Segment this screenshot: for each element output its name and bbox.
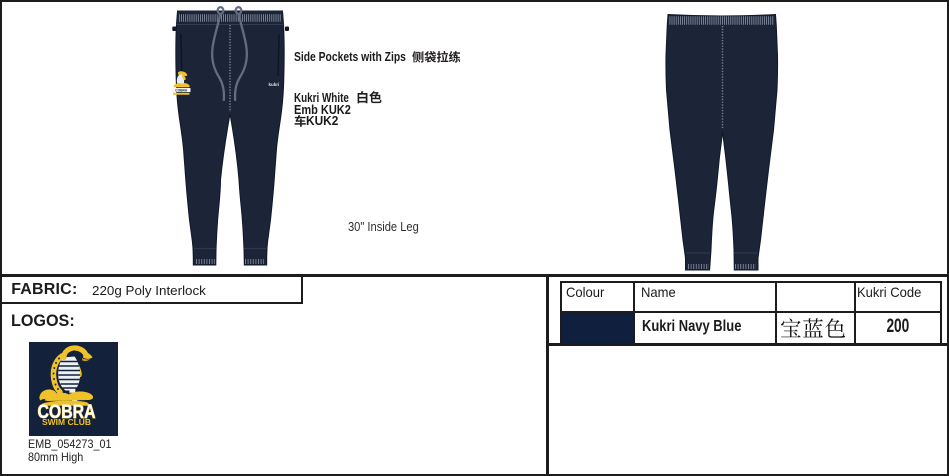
svg-text:SWIM CLUB: SWIM CLUB <box>42 417 91 427</box>
svg-text:COBRA: COBRA <box>175 88 188 92</box>
svg-text:kukri: kukri <box>269 82 280 87</box>
